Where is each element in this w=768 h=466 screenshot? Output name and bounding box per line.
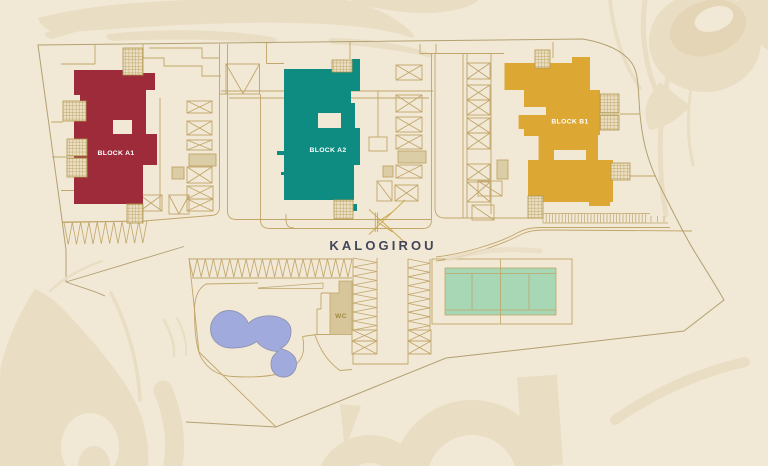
svg-text:WC: WC [335, 313, 347, 320]
svg-text:BLOCK A2: BLOCK A2 [310, 147, 347, 154]
svg-text:KALOGIROU: KALOGIROU [329, 238, 436, 253]
svg-text:BLOCK B1: BLOCK B1 [551, 119, 588, 126]
svg-text:BLOCK A1: BLOCK A1 [98, 150, 135, 157]
